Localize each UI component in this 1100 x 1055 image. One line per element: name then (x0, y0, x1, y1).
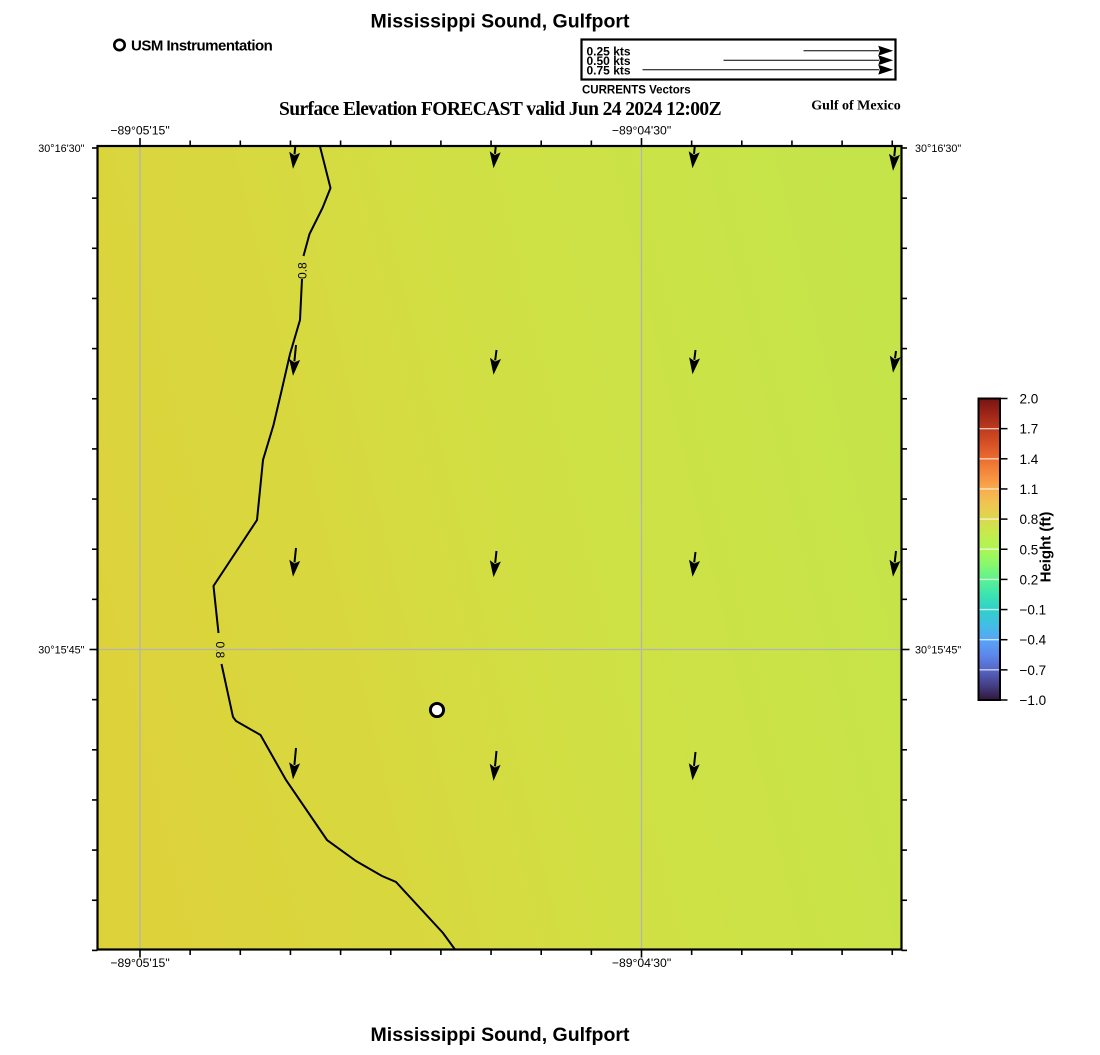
svg-text:2.0: 2.0 (1020, 392, 1039, 407)
svg-text:−0.1: −0.1 (1020, 603, 1047, 618)
svg-text:CURRENTS Vectors: CURRENTS Vectors (582, 85, 691, 97)
svg-text:0.2: 0.2 (1020, 572, 1039, 587)
svg-text:Mississippi Sound, Gulfport: Mississippi Sound, Gulfport (371, 1024, 630, 1046)
svg-text:1.1: 1.1 (1020, 482, 1039, 497)
svg-text:−89°05'15": −89°05'15" (110, 956, 169, 970)
svg-text:−89°05'15": −89°05'15" (110, 124, 169, 138)
svg-text:30°16'30": 30°16'30" (38, 143, 84, 155)
svg-text:0.75 kts: 0.75 kts (587, 63, 631, 77)
svg-text:−89°04'30": −89°04'30" (612, 124, 671, 138)
svg-text:−0.7: −0.7 (1020, 663, 1047, 678)
svg-text:−1.0: −1.0 (1020, 693, 1047, 708)
svg-text:1.7: 1.7 (1020, 422, 1039, 437)
svg-text:0.8: 0.8 (295, 262, 309, 279)
svg-text:30°15'45": 30°15'45" (915, 645, 961, 657)
svg-text:30°15'45": 30°15'45" (38, 645, 84, 657)
svg-text:0.8: 0.8 (1020, 512, 1039, 527)
svg-text:Height (ft): Height (ft) (1038, 512, 1055, 583)
svg-text:−89°04'30": −89°04'30" (612, 956, 671, 970)
svg-text:Mississippi Sound, Gulfport: Mississippi Sound, Gulfport (371, 11, 630, 33)
svg-text:−0.4: −0.4 (1020, 633, 1047, 648)
svg-text:30°16'30": 30°16'30" (915, 143, 961, 155)
svg-text:1.4: 1.4 (1020, 452, 1039, 467)
svg-text:Surface Elevation FORECAST val: Surface Elevation FORECAST valid Jun 24 … (279, 99, 722, 120)
svg-text:Gulf of Mexico: Gulf of Mexico (811, 99, 900, 114)
svg-text:USM Instrumentation: USM Instrumentation (131, 38, 273, 55)
svg-text:0.5: 0.5 (1020, 542, 1039, 557)
